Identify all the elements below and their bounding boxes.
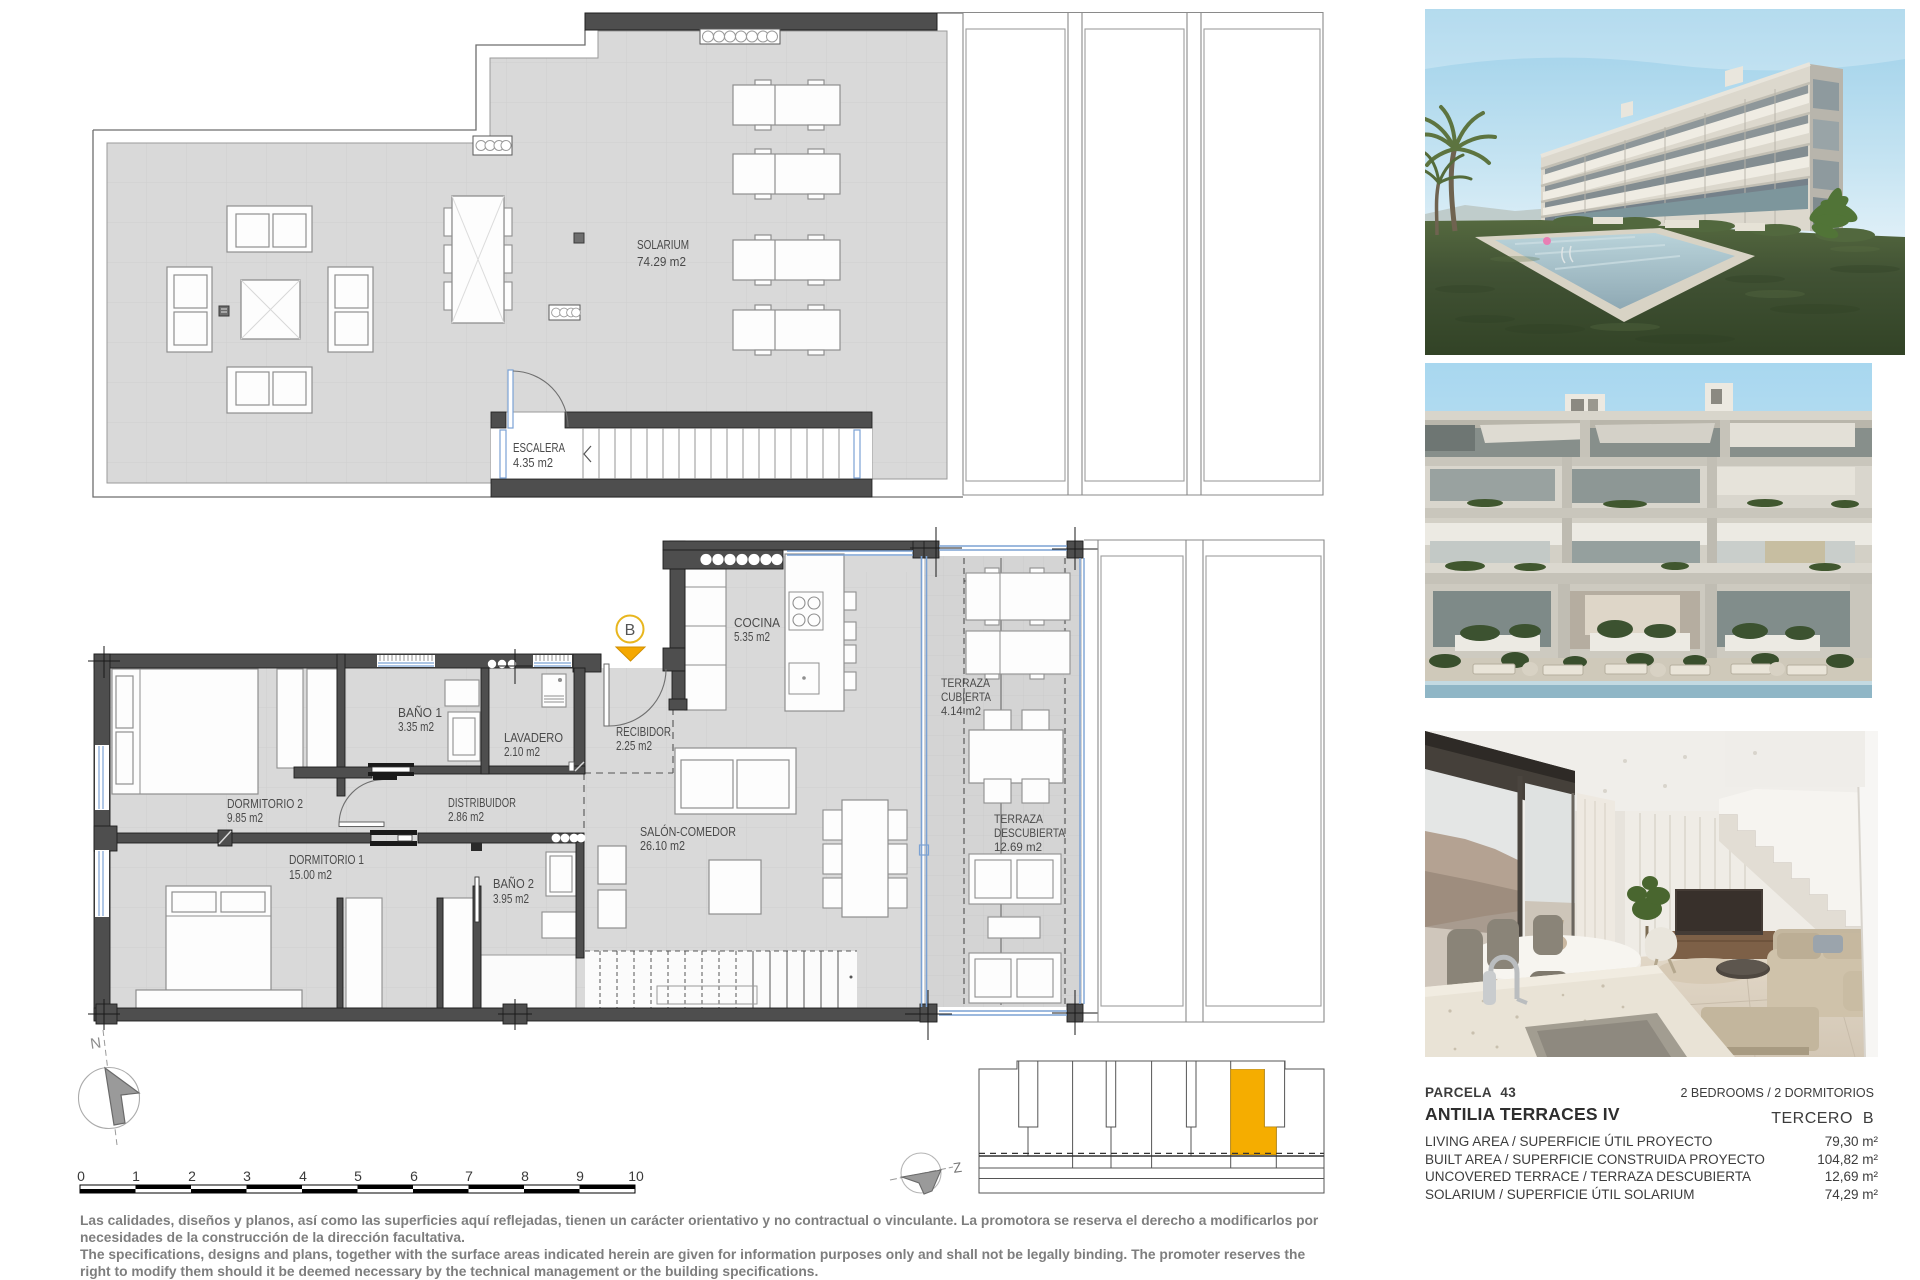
svg-text:3.35 m2: 3.35 m2 bbox=[398, 720, 434, 734]
svg-text:CUBIERTA: CUBIERTA bbox=[941, 690, 991, 704]
svg-text:COCINA: COCINA bbox=[734, 616, 781, 630]
svg-text:SOLARIUM: SOLARIUM bbox=[637, 238, 689, 252]
svg-text:5: 5 bbox=[354, 1168, 362, 1184]
svg-text:10: 10 bbox=[628, 1168, 644, 1184]
svg-text:1: 1 bbox=[132, 1168, 140, 1184]
svg-text:26.10 m2: 26.10 m2 bbox=[640, 839, 685, 853]
svg-text:DORMITORIO 1: DORMITORIO 1 bbox=[289, 853, 364, 867]
svg-text:TERRAZA: TERRAZA bbox=[941, 676, 990, 690]
svg-text:DESCUBIERTA: DESCUBIERTA bbox=[994, 826, 1065, 840]
svg-text:DISTRIBUIDOR: DISTRIBUIDOR bbox=[448, 796, 516, 810]
svg-text:5.35 m2: 5.35 m2 bbox=[734, 630, 770, 644]
svg-text:7: 7 bbox=[465, 1168, 473, 1184]
svg-text:Z: Z bbox=[952, 1159, 963, 1176]
svg-text:0: 0 bbox=[77, 1168, 85, 1184]
svg-text:4.14 m2: 4.14 m2 bbox=[941, 704, 981, 718]
svg-text:12.69 m2: 12.69 m2 bbox=[994, 840, 1042, 854]
svg-text:74.29 m2: 74.29 m2 bbox=[637, 255, 686, 269]
svg-text:2.10 m2: 2.10 m2 bbox=[504, 745, 540, 759]
svg-text:ESCALERA: ESCALERA bbox=[513, 441, 566, 455]
svg-text:BAÑO 1: BAÑO 1 bbox=[398, 706, 442, 720]
svg-text:DORMITORIO 2: DORMITORIO 2 bbox=[227, 797, 303, 811]
svg-text:2: 2 bbox=[188, 1168, 196, 1184]
svg-text:2.25 m2: 2.25 m2 bbox=[616, 739, 652, 753]
svg-text:BAÑO 2: BAÑO 2 bbox=[493, 877, 534, 891]
svg-text:LAVADERO: LAVADERO bbox=[504, 731, 563, 745]
svg-text:N: N bbox=[89, 1035, 102, 1053]
svg-text:9: 9 bbox=[576, 1168, 584, 1184]
svg-text:15.00 m2: 15.00 m2 bbox=[289, 868, 332, 882]
svg-text:SALÓN-COMEDOR: SALÓN-COMEDOR bbox=[640, 824, 736, 839]
svg-text:4: 4 bbox=[299, 1168, 307, 1184]
svg-text:RECIBIDOR: RECIBIDOR bbox=[616, 725, 671, 739]
svg-text:8: 8 bbox=[521, 1168, 529, 1184]
svg-text:TERRAZA: TERRAZA bbox=[994, 812, 1043, 826]
svg-text:9.85 m2: 9.85 m2 bbox=[227, 811, 263, 825]
svg-text:2.86 m2: 2.86 m2 bbox=[448, 810, 484, 824]
svg-text:B: B bbox=[625, 622, 636, 639]
svg-text:3: 3 bbox=[243, 1168, 251, 1184]
svg-text:6: 6 bbox=[410, 1168, 418, 1184]
svg-text:3.95 m2: 3.95 m2 bbox=[493, 892, 529, 906]
svg-text:4.35 m2: 4.35 m2 bbox=[513, 456, 553, 470]
